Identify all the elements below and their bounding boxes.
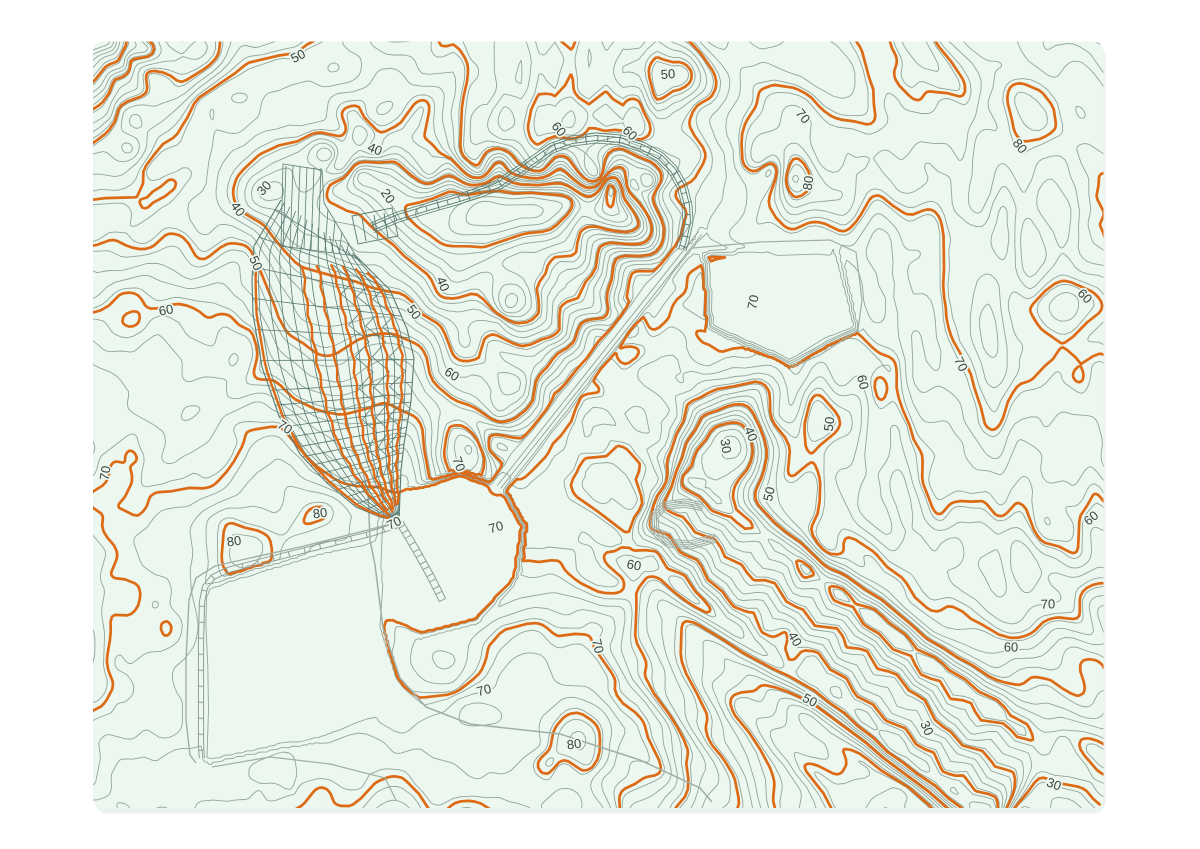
svg-text:70: 70 bbox=[96, 465, 113, 482]
svg-text:30: 30 bbox=[717, 438, 734, 455]
svg-text:50: 50 bbox=[660, 66, 676, 82]
svg-text:60: 60 bbox=[157, 301, 174, 318]
svg-text:80: 80 bbox=[312, 505, 328, 522]
svg-text:70: 70 bbox=[1041, 596, 1056, 611]
svg-text:60: 60 bbox=[626, 556, 643, 573]
svg-text:50: 50 bbox=[821, 416, 838, 432]
svg-text:60: 60 bbox=[1004, 639, 1019, 654]
svg-text:80: 80 bbox=[800, 175, 817, 191]
svg-text:80: 80 bbox=[226, 533, 242, 550]
svg-text:70: 70 bbox=[744, 293, 761, 310]
svg-text:80: 80 bbox=[566, 736, 582, 753]
